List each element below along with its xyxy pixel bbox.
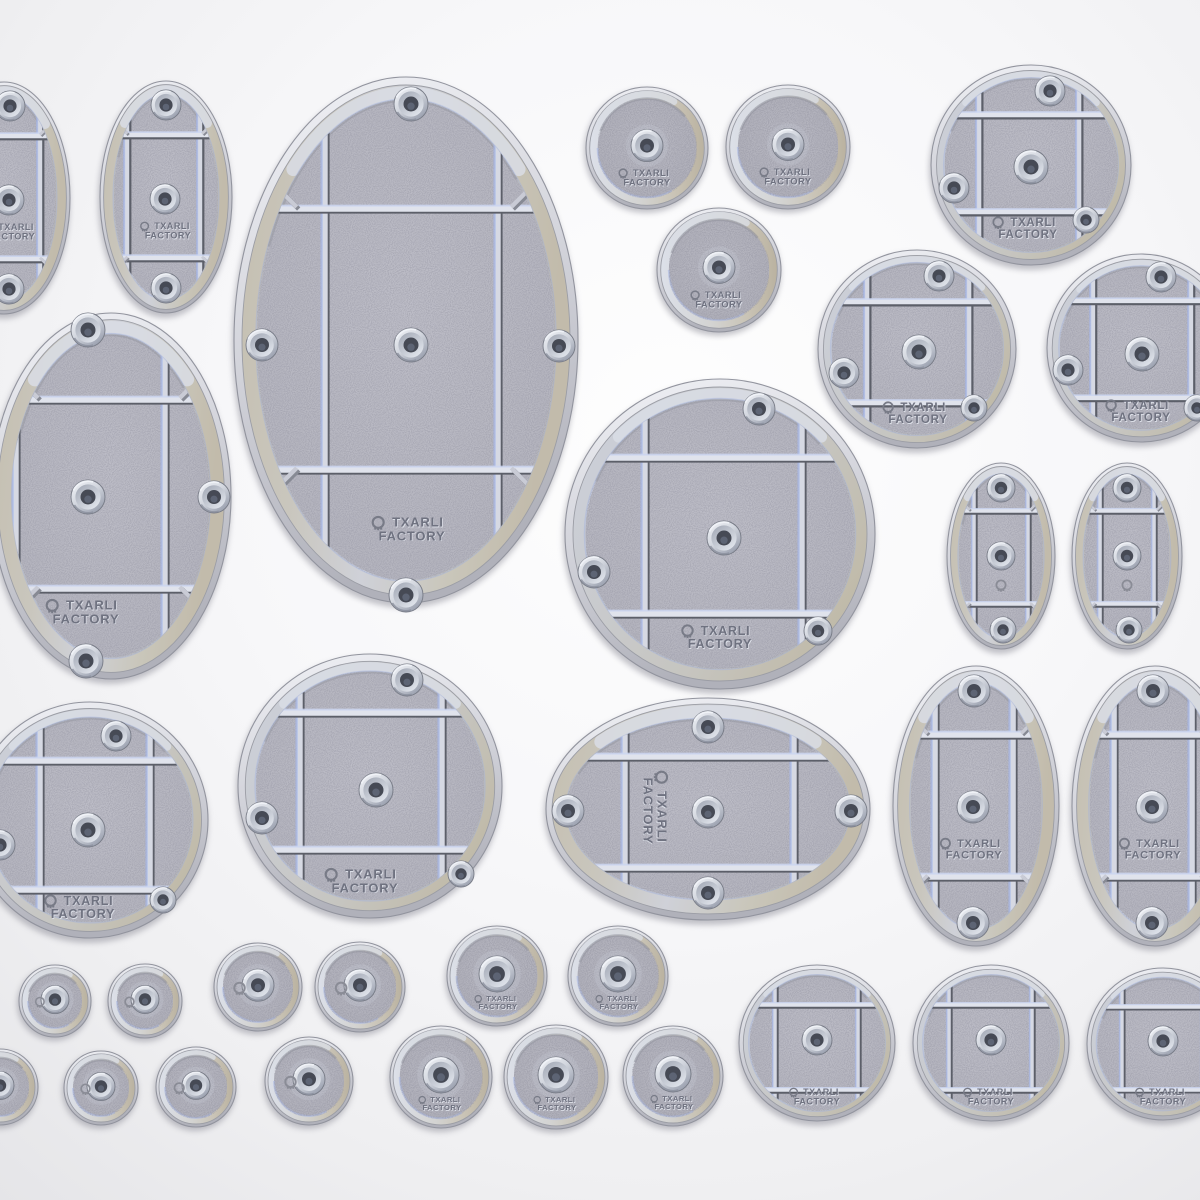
svg-text:FACTORY: FACTORY (1140, 1097, 1186, 1107)
svg-text:FACTORY: FACTORY (53, 611, 120, 626)
svg-text:FACTORY: FACTORY (688, 637, 752, 651)
svg-text:FACTORY: FACTORY (478, 1002, 517, 1011)
svg-text:TXARLI: TXARLI (1136, 838, 1180, 850)
svg-text:TXARLI: TXARLI (774, 167, 810, 177)
svg-text:TXARLI: TXARLI (633, 168, 669, 178)
svg-text:TXARLI: TXARLI (900, 402, 946, 414)
svg-text:FACTORY: FACTORY (888, 414, 947, 426)
svg-text:FACTORY: FACTORY (764, 177, 811, 187)
svg-text:FACTORY: FACTORY (422, 1103, 461, 1112)
svg-text:FACTORY: FACTORY (641, 778, 656, 845)
svg-text:FACTORY: FACTORY (794, 1097, 840, 1107)
svg-text:FACTORY: FACTORY (599, 1002, 638, 1011)
svg-text:FACTORY: FACTORY (998, 229, 1057, 241)
svg-text:TXARLI: TXARLI (0, 222, 34, 232)
svg-text:FACTORY: FACTORY (145, 231, 191, 241)
svg-text:FACTORY: FACTORY (695, 300, 742, 310)
svg-text:FACTORY: FACTORY (1125, 850, 1182, 862)
svg-text:TXARLI: TXARLI (154, 221, 190, 231)
svg-text:FACTORY: FACTORY (623, 178, 670, 188)
svg-text:FACTORY: FACTORY (1111, 412, 1170, 424)
svg-text:TXARLI: TXARLI (957, 838, 1001, 850)
svg-text:FACTORY: FACTORY (946, 850, 1003, 862)
svg-text:FACTORY: FACTORY (537, 1103, 576, 1112)
svg-text:FACTORY: FACTORY (654, 1102, 693, 1111)
svg-text:FACTORY: FACTORY (332, 880, 399, 895)
svg-text:FACTORY: FACTORY (379, 528, 446, 543)
svg-text:TXARLI: TXARLI (64, 894, 114, 908)
svg-text:TXARLI: TXARLI (705, 290, 741, 300)
svg-text:TXARLI: TXARLI (1123, 400, 1169, 412)
svg-text:TXARLI: TXARLI (1010, 217, 1056, 229)
svg-text:FACTORY: FACTORY (51, 907, 115, 921)
svg-text:TXARLI: TXARLI (701, 624, 751, 638)
svg-text:FACTORY: FACTORY (0, 232, 35, 242)
svg-text:FACTORY: FACTORY (968, 1097, 1014, 1107)
